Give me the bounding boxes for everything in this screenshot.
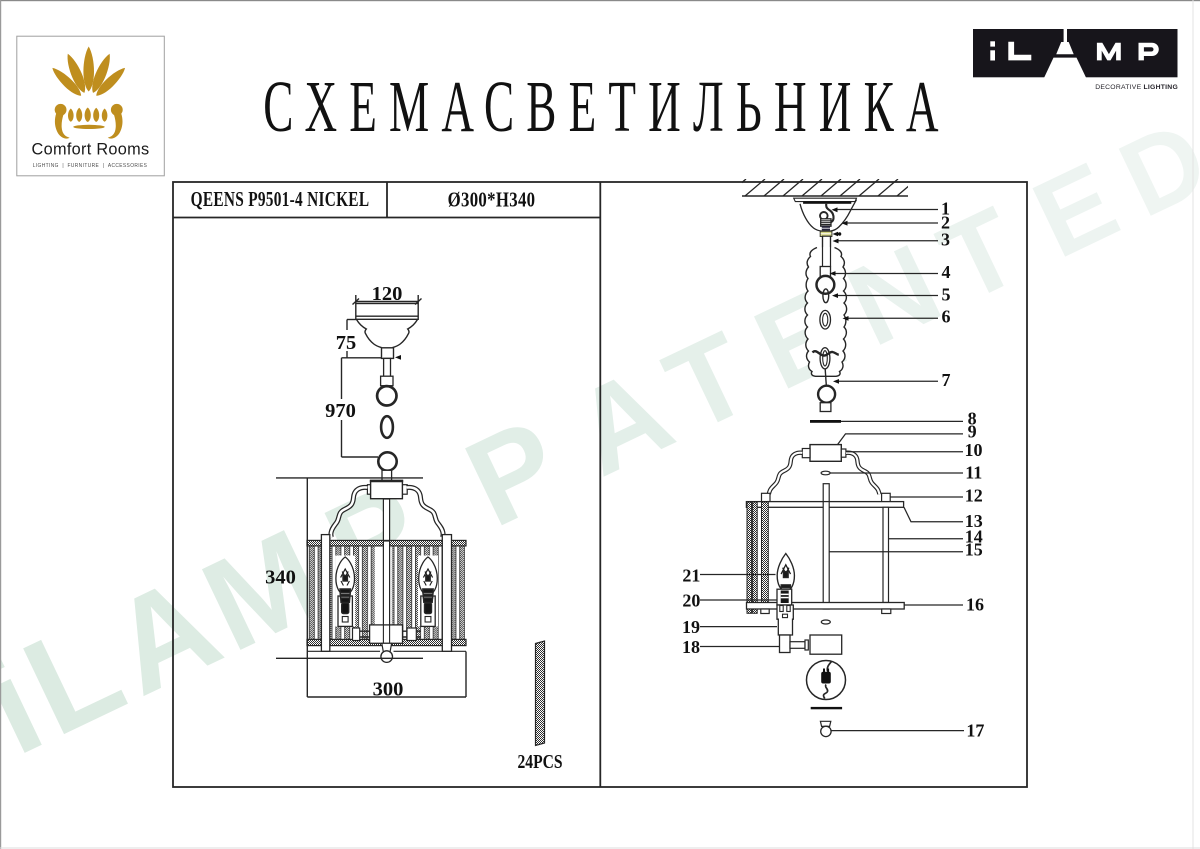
svg-text:17: 17: [966, 721, 984, 741]
svg-text:21: 21: [682, 565, 700, 585]
svg-text:9: 9: [968, 422, 977, 442]
svg-text:DECORATIVE LIGHTING: DECORATIVE LIGHTING: [1095, 84, 1178, 91]
svg-text:LIGHTING | FURNITURE | ACC: LIGHTING | FURNITURE | ACCESSORIES: [33, 163, 148, 169]
svg-text:7: 7: [942, 370, 951, 390]
svg-text:16: 16: [966, 595, 984, 615]
svg-text:20: 20: [682, 591, 700, 611]
svg-text:6: 6: [942, 307, 951, 327]
svg-text:75: 75: [336, 332, 357, 354]
svg-text:15: 15: [965, 540, 983, 560]
svg-text:24PCS: 24PCS: [518, 750, 563, 773]
svg-text:3: 3: [941, 230, 950, 250]
svg-text:18: 18: [682, 637, 700, 657]
svg-text:Comfort Rooms: Comfort Rooms: [32, 141, 150, 159]
svg-text:12: 12: [965, 486, 983, 506]
svg-text:4: 4: [942, 262, 951, 282]
svg-text:970: 970: [325, 400, 356, 422]
svg-text:340: 340: [265, 567, 296, 589]
svg-text:11: 11: [965, 463, 982, 483]
svg-text:QEENS P9501-4 NICKEL: QEENS P9501-4 NICKEL: [191, 188, 370, 211]
svg-text:5: 5: [942, 284, 951, 304]
svg-text:10: 10: [965, 440, 983, 460]
svg-text:300: 300: [373, 679, 404, 701]
svg-text:P: P: [447, 393, 581, 553]
svg-text:Ø300*H340: Ø300*H340: [448, 189, 536, 212]
svg-text:19: 19: [682, 617, 700, 637]
svg-text:СХЕМАСВЕТИЛЬНИКА: СХЕМАСВЕТИЛЬНИКА: [263, 67, 950, 148]
svg-text:120: 120: [372, 283, 403, 305]
